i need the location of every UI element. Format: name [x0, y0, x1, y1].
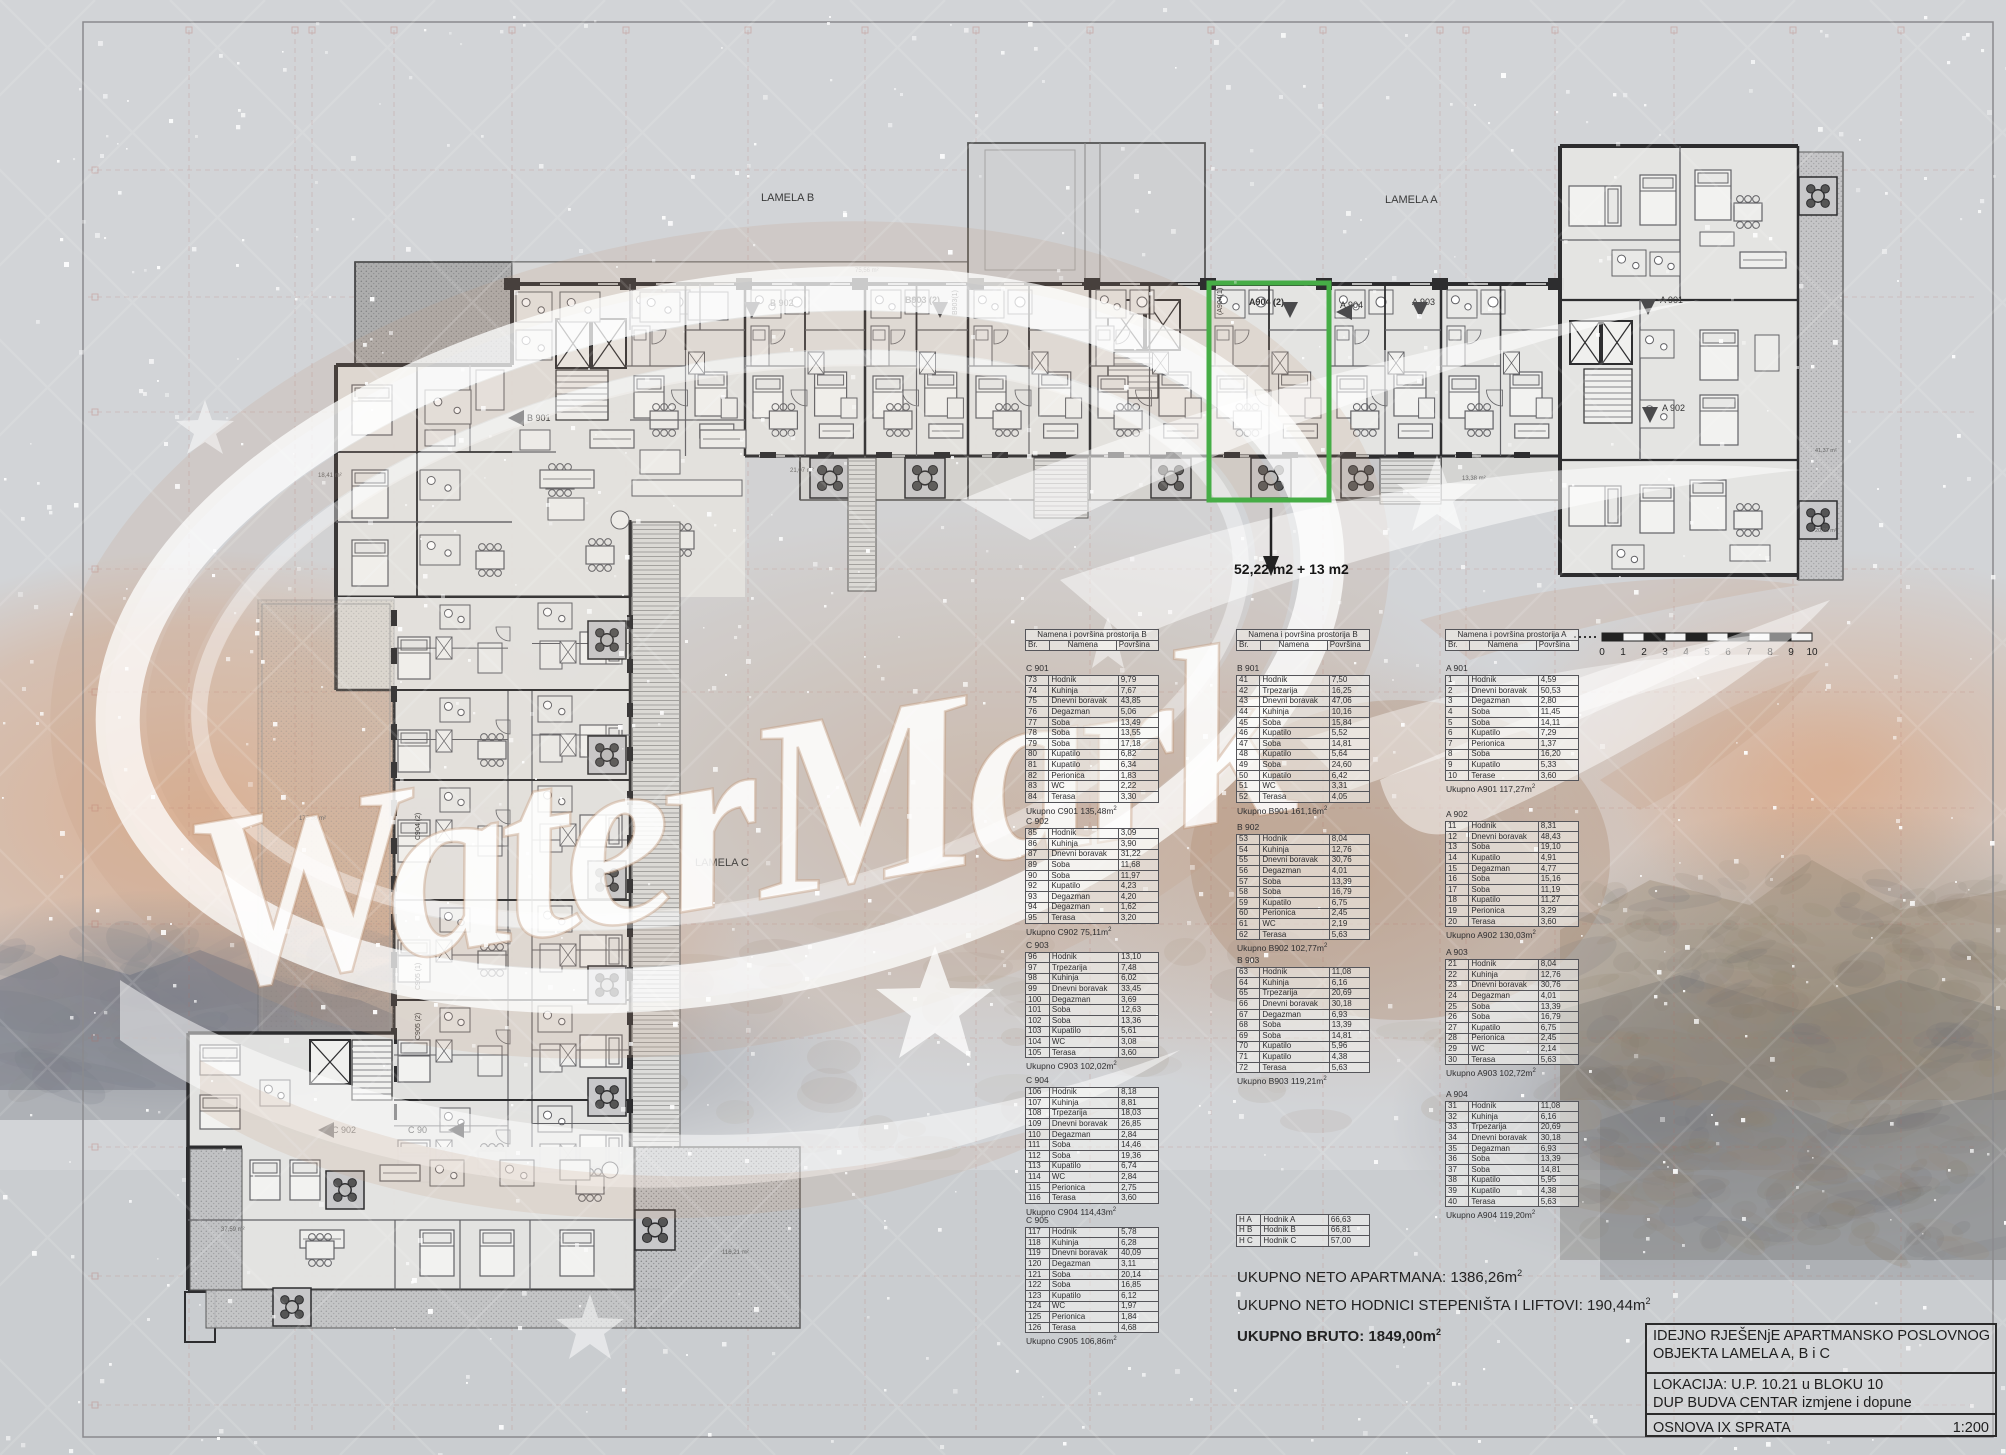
svg-text:A904 (2): A904 (2)	[1249, 297, 1284, 307]
svg-text:0: 0	[1599, 647, 1605, 658]
svg-text:41,37 m²: 41,37 m²	[1815, 448, 1837, 454]
svg-text:A 902: A 902	[1662, 403, 1685, 413]
svg-text:20,05 m²: 20,05 m²	[1815, 528, 1837, 534]
svg-text:9: 9	[1788, 647, 1794, 658]
svg-text:52,22 m2 + 13 m2: 52,22 m2 + 13 m2	[1234, 561, 1349, 577]
svg-text:2: 2	[1641, 647, 1647, 658]
svg-text:LAMELA B: LAMELA B	[761, 192, 814, 204]
svg-text:10: 10	[1806, 647, 1818, 658]
svg-text:1: 1	[1620, 647, 1626, 658]
